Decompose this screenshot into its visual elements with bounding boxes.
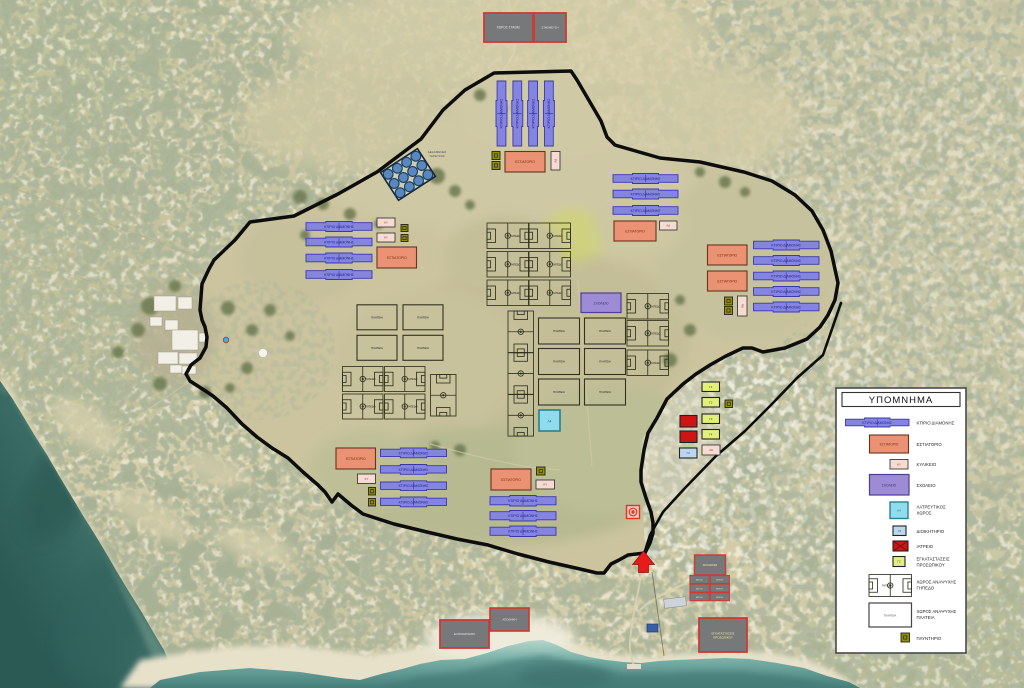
svg-text:ΣΧΟΛΕΙΟ: ΣΧΟΛΕΙΟ — [593, 302, 608, 306]
svg-text:Γ2: Γ2 — [897, 560, 901, 564]
svg-text:ΚΤΙΡΙΟ ΔΙΑΜΟΝΗΣ: ΚΤΙΡΙΟ ΔΙΑΜΟΝΗΣ — [324, 240, 354, 244]
svg-text:ΧΩΡΟΣ ΑΝΑΨΥΧΗΣ: ΧΩΡΟΣ ΑΝΑΨΥΧΗΣ — [917, 580, 957, 585]
svg-text:ΠΛΑΤΕΙΑ: ΠΛΑΤΕΙΑ — [553, 360, 565, 364]
svg-text:Γ2: Γ2 — [687, 451, 691, 455]
svg-text:ΠΛΑΤΕΙΑ: ΠΛΑΤΕΙΑ — [599, 329, 611, 333]
svg-text:ΚΤΙΡΙΟ ΔΙΑΜΟΝΗΣ: ΚΤΙΡΙΟ ΔΙΑΜΟΝΗΣ — [862, 421, 892, 425]
svg-text:ΠΡΟΣΩΠΙΚΟΥ: ΠΡΟΣΩΠΙΚΟΥ — [917, 563, 945, 568]
svg-text:ΚΤΙΡΙΟ ΔΙΑΜΟΝΗΣ: ΚΤΙΡΙΟ ΔΙΑΜΟΝΗΣ — [324, 225, 354, 229]
svg-text:Γ2: Γ2 — [709, 400, 713, 404]
svg-text:ΛΔ: ΛΔ — [740, 304, 744, 308]
svg-text:ΚΥ: ΚΥ — [543, 483, 547, 487]
svg-text:ΠΛΑΤΕΙΑ: ΠΛΑΤΕΙΑ — [553, 329, 565, 333]
svg-text:ΓΗΠΕΔΟ: ΓΗΠΕΔΟ — [650, 331, 661, 335]
svg-text:ΚΤΙΡΙΟ ΔΙΑΜΟΝΗΣ: ΚΤΙΡΙΟ ΔΙΑΜΟΝΗΣ — [399, 500, 429, 504]
svg-text:ΚΤΙΡΙΟ ΔΙΑΜΟΝΗΣ: ΚΤΙΡΙΟ ΔΙΑΜΟΝΗΣ — [547, 99, 551, 129]
svg-text:Γ4: Γ4 — [709, 432, 713, 436]
svg-text:ΣΧΟΛΕΙΟ: ΣΧΟΛΕΙΟ — [917, 483, 937, 488]
svg-text:ΓΗΠΕΔΟ: ΓΗΠΕΔΟ — [510, 291, 521, 295]
svg-text:ΚΥ: ΚΥ — [384, 236, 388, 240]
svg-text:ΕΣΤΙΑΤΟΡΙΟ: ΕΣΤΙΑΤΟΡΙΟ — [387, 256, 407, 260]
svg-text:ΓΗΠΕΔΟ: ΓΗΠΕΔΟ — [407, 405, 418, 409]
svg-text:Λ4: Λ4 — [548, 419, 552, 423]
svg-text:ΣΤΑΘΜΕΥΣΗ: ΣΤΑΘΜΕΥΣΗ — [541, 26, 558, 30]
svg-text:ΥΔΡΕΥΣΗΣ: ΥΔΡΕΥΣΗΣ — [429, 154, 445, 158]
svg-text:ΓΗΠΕΔΟ: ΓΗΠΕΔΟ — [650, 304, 661, 308]
svg-text:ΚΥ: ΚΥ — [365, 477, 369, 481]
svg-text:ΓΗΠΕΔΟ: ΓΗΠΕΔΟ — [650, 361, 661, 365]
svg-text:ΑΠΟΘ.: ΑΠΟΘ. — [716, 579, 723, 582]
svg-text:ΚΤΙΡΙΟ ΔΙΑΜΟΝΗΣ: ΚΤΙΡΙΟ ΔΙΑΜΟΝΗΣ — [771, 274, 801, 278]
svg-text:ΚΤΙΡΙΟ ΔΙΑΜΟΝΗΣ: ΚΤΙΡΙΟ ΔΙΑΜΟΝΗΣ — [399, 451, 429, 455]
svg-text:ΓΗΠΕΔΟ: ΓΗΠΕΔΟ — [407, 377, 418, 381]
svg-text:ΠΛΑΤΕΙΑ: ΠΛΑΤΕΙΑ — [599, 390, 611, 394]
svg-text:ΚΤΙΡΙΟ ΔΙΑΜΟΝΗΣ: ΚΤΙΡΙΟ ΔΙΑΜΟΝΗΣ — [324, 256, 354, 260]
svg-text:ΠΛΑΤΕΙΑ: ΠΛΑΤΕΙΑ — [371, 316, 383, 320]
svg-text:ΕΣΤΙΑΤΟΡΙΟ: ΕΣΤΙΑΤΟΡΙΟ — [917, 442, 943, 447]
svg-text:ΧΩΡΟΣ: ΧΩΡΟΣ — [917, 511, 932, 516]
svg-text:ΕΣΤΙΑΤΟΡΙΟ: ΕΣΤΙΑΤΟΡΙΟ — [346, 457, 366, 461]
svg-text:ΓΗΠΕΔΟ: ΓΗΠΕΔΟ — [510, 262, 521, 266]
svg-text:ΚΤΙΡΙΟ ΔΙΑΜΟΝΗΣ: ΚΤΙΡΙΟ ΔΙΑΜΟΝΗΣ — [771, 290, 801, 294]
svg-text:ΠΛΑΤΕΙΑ: ΠΛΑΤΕΙΑ — [371, 346, 383, 350]
svg-text:ΛΑΤΡΕΥΤΙΚΟΣ: ΛΑΤΡΕΥΤΙΚΟΣ — [917, 505, 947, 510]
svg-text:ΓΗΠΕΔΟ: ΓΗΠΕΔΟ — [552, 291, 563, 295]
svg-text:ΠΛΑΤΕΙΑ: ΠΛΑΤΕΙΑ — [553, 390, 565, 394]
svg-text:ΓΗΠΕΔΟ: ΓΗΠΕΔΟ — [365, 405, 376, 409]
svg-text:ΠΡΟΣΩΠΙΚΟΥ: ΠΡΟΣΩΠΙΚΟΥ — [713, 635, 733, 639]
svg-text:ΚΤΙΡΙΟ ΔΙΑΜΟΝΗΣ: ΚΤΙΡΙΟ ΔΙΑΜΟΝΗΣ — [508, 514, 538, 518]
svg-text:ΚΤΙΡΙΟ ΔΙΑΜΟΝΗΣ: ΚΤΙΡΙΟ ΔΙΑΜΟΝΗΣ — [631, 192, 661, 196]
svg-text:ΚΤΙΡΙΟ ΔΙΑΜΟΝΗΣ: ΚΤΙΡΙΟ ΔΙΑΜΟΝΗΣ — [631, 177, 661, 181]
svg-text:ΕΣΤΙΑΤΟΡΙΟ: ΕΣΤΙΑΤΟΡΙΟ — [717, 253, 737, 257]
svg-text:ΧΩΡΟΣ ΣΤΑΘΜ.: ΧΩΡΟΣ ΣΤΑΘΜ. — [497, 26, 521, 30]
svg-text:ΛΔ: ΛΔ — [709, 448, 713, 452]
svg-text:ΥΠΟΜΝΗΜΑ: ΥΠΟΜΝΗΜΑ — [869, 395, 933, 406]
svg-text:ΓΗΠΕΔΟ: ΓΗΠΕΔΟ — [365, 377, 376, 381]
svg-text:ΧΩΡΟΣ ΑΝΑΨΥΧΗΣ: ΧΩΡΟΣ ΑΝΑΨΥΧΗΣ — [917, 609, 957, 614]
svg-text:ΚΥ: ΚΥ — [897, 462, 901, 466]
svg-text:ΚΤΙΡΙΟ ΔΙΑΜΟΝΗΣ: ΚΤΙΡΙΟ ΔΙΑΜΟΝΗΣ — [399, 468, 429, 472]
svg-text:ΚΤΙΡΙΟ ΔΙΑΜΟΝΗΣ: ΚΤΙΡΙΟ ΔΙΑΜΟΝΗΣ — [771, 259, 801, 263]
svg-text:ΕΛΙΚΟΔΡΟΜΙΟ: ΕΛΙΚΟΔΡΟΜΙΟ — [454, 632, 476, 636]
svg-text:ΕΣΤΙΑΤΟΡΙΟ: ΕΣΤΙΑΤΟΡΙΟ — [717, 279, 737, 283]
svg-text:Γ2: Γ2 — [898, 529, 902, 533]
svg-text:ΚΤΙΡΙΟ ΔΙΑΜΟΝΗΣ: ΚΤΙΡΙΟ ΔΙΑΜΟΝΗΣ — [508, 530, 538, 534]
svg-text:ΕΣΤΙΑΤΟΡΙΟ: ΕΣΤΙΑΤΟΡΙΟ — [880, 442, 899, 446]
svg-text:ΑΠΟΘΗΚΕΣ: ΑΠΟΘΗΚΕΣ — [703, 563, 718, 567]
svg-text:ΚΤΙΡΙΟ ΔΙΑΜΟΝΗΣ: ΚΤΙΡΙΟ ΔΙΑΜΟΝΗΣ — [508, 499, 538, 503]
svg-text:ΕΣΤΙΑΤΟΡΙΟ: ΕΣΤΙΑΤΟΡΙΟ — [625, 229, 645, 233]
svg-text:ΓΗΠΕΔΟ: ΓΗΠΕΔΟ — [552, 262, 563, 266]
svg-text:ΕΣΤΙΑΤΟΡΙΟ: ΕΣΤΙΑΤΟΡΙΟ — [501, 478, 521, 482]
svg-text:ΠΛΑΤΕΙΑ: ΠΛΑΤΕΙΑ — [917, 615, 935, 620]
svg-text:ΔΙΟΙΚΗΤΗΡΙΟ: ΔΙΟΙΚΗΤΗΡΙΟ — [917, 529, 945, 534]
svg-text:ΕΣΤΙΑΤΟΡΙΟ: ΕΣΤΙΑΤΟΡΙΟ — [515, 160, 535, 164]
svg-text:ΚΥ: ΚΥ — [384, 221, 388, 225]
svg-text:ΓΗΠΕΔΟ: ΓΗΠΕΔΟ — [882, 585, 892, 588]
svg-text:ΚΤΙΡΙΟ ΔΙΑΜΟΝΗΣ: ΚΤΙΡΙΟ ΔΙΑΜΟΝΗΣ — [516, 99, 520, 129]
svg-text:ΛΔ: ΛΔ — [666, 224, 670, 228]
svg-text:ΑΠΟΘ.: ΑΠΟΘ. — [696, 587, 703, 590]
svg-text:ΑΠΟΘ.: ΑΠΟΘ. — [716, 596, 723, 599]
svg-text:ΚΥΛΙΚΕΙΟ: ΚΥΛΙΚΕΙΟ — [917, 462, 937, 467]
svg-text:ΠΛΑΤΕΙΑ: ΠΛΑΤΕΙΑ — [884, 614, 897, 618]
svg-text:ΠΛΑΤΕΙΑ: ΠΛΑΤΕΙΑ — [417, 316, 429, 320]
svg-text:ΠΛΑΤΕΙΑ: ΠΛΑΤΕΙΑ — [417, 346, 429, 350]
svg-text:ΚΤΙΡΙΟ ΔΙΑΜΟΝΗΣ: ΚΤΙΡΙΟ ΔΙΑΜΟΝΗΣ — [399, 484, 429, 488]
svg-text:ΙΑΤΡΕΙΟ: ΙΑΤΡΕΙΟ — [917, 544, 934, 549]
svg-text:ΕΓΚΑΤΑΣΤΑΣΕΙΣ: ΕΓΚΑΤΑΣΤΑΣΕΙΣ — [917, 557, 950, 562]
svg-text:ΑΠΟΘΗΚΗ: ΑΠΟΘΗΚΗ — [502, 618, 516, 622]
svg-text:ΠΛΥΝΤΗΡΙΟ: ΠΛΥΝΤΗΡΙΟ — [917, 636, 942, 641]
svg-text:ΓΗΠΕΔΟ: ΓΗΠΕΔΟ — [917, 586, 935, 591]
svg-text:ΚΤΙΡΙΟ ΔΙΑΜΟΝΗΣ: ΚΤΙΡΙΟ ΔΙΑΜΟΝΗΣ — [531, 99, 535, 129]
svg-text:ΣΧΟΛΕΙΟ: ΣΧΟΛΕΙΟ — [882, 484, 897, 488]
svg-text:ΓΗΠΕΔΟ: ΓΗΠΕΔΟ — [510, 234, 521, 238]
svg-text:ΠΛΑΤΕΙΑ: ΠΛΑΤΕΙΑ — [599, 360, 611, 364]
svg-text:ΑΠΟΘ.: ΑΠΟΘ. — [696, 596, 703, 599]
svg-text:Γ1: Γ1 — [709, 385, 713, 389]
svg-text:Λ4: Λ4 — [897, 509, 901, 513]
svg-text:ΑΠΟΘ.: ΑΠΟΘ. — [696, 579, 703, 582]
svg-text:ΑΠΟΘ.: ΑΠΟΘ. — [716, 587, 723, 590]
svg-text:ΚΤΙΡΙΟ ΔΙΑΜΟΝΗΣ: ΚΤΙΡΙΟ ΔΙΑΜΟΝΗΣ — [631, 209, 661, 213]
svg-text:ΚΤΙΡΙΟ ΔΙΑΜΟΝΗΣ: ΚΤΙΡΙΟ ΔΙΑΜΟΝΗΣ — [917, 421, 955, 426]
svg-text:Γ3: Γ3 — [709, 417, 713, 421]
svg-text:ΚΤΙΡΙΟ ΔΙΑΜΟΝΗΣ: ΚΤΙΡΙΟ ΔΙΑΜΟΝΗΣ — [500, 99, 504, 129]
svg-text:ΚΤΙΡΙΟ ΔΙΑΜΟΝΗΣ: ΚΤΙΡΙΟ ΔΙΑΜΟΝΗΣ — [771, 305, 801, 309]
svg-text:ΚΤΙΡΙΟ ΔΙΑΜΟΝΗΣ: ΚΤΙΡΙΟ ΔΙΑΜΟΝΗΣ — [771, 243, 801, 247]
svg-text:ΛΔ: ΛΔ — [554, 159, 558, 163]
svg-text:ΓΗΠΕΔΟ: ΓΗΠΕΔΟ — [552, 234, 563, 238]
svg-text:ΚΤΙΡΙΟ ΔΙΑΜΟΝΗΣ: ΚΤΙΡΙΟ ΔΙΑΜΟΝΗΣ — [324, 273, 354, 277]
